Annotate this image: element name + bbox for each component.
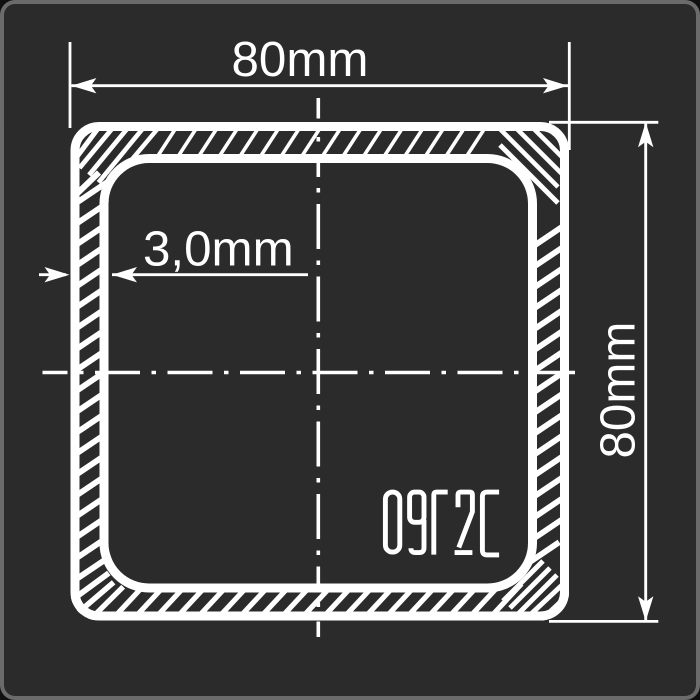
svg-text:80mm: 80mm: [591, 322, 646, 459]
svg-text:3,0mm: 3,0mm: [143, 222, 294, 277]
svg-text:80mm: 80mm: [232, 32, 369, 87]
